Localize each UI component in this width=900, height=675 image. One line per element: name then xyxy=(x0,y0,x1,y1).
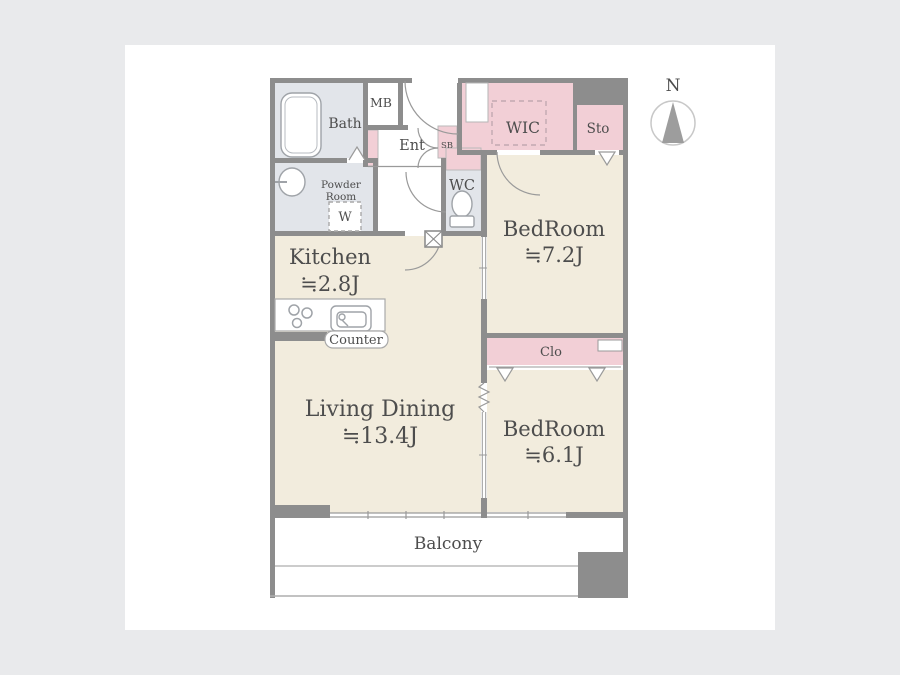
room-bedroom-b xyxy=(487,370,623,512)
label-kitchen: Kitchen xyxy=(289,245,371,269)
label-washer: W xyxy=(338,210,352,225)
label-living: Living Dining xyxy=(305,397,456,422)
label-powder-2: Room xyxy=(326,191,357,203)
label-powder-1: Powder xyxy=(321,179,362,191)
label-balcony: Balcony xyxy=(414,534,483,554)
floor-plan-drawing: N Bath Powder Room W MB Ent SB WC WIC St… xyxy=(0,0,900,675)
pipe-shaft-icon xyxy=(425,231,442,247)
label-bedroom-b-size: ≒6.1J xyxy=(524,443,583,467)
block-living-corner xyxy=(270,505,330,518)
block-balcony-top xyxy=(578,552,628,598)
label-wc: WC xyxy=(449,178,475,194)
closet-notch xyxy=(598,340,622,351)
label-kitchen-size: ≒2.8J xyxy=(300,272,359,296)
label-shoe-box: SB xyxy=(441,141,453,151)
label-meter-box: MB xyxy=(370,95,392,110)
label-counter: Counter xyxy=(329,333,383,348)
label-wic: WIC xyxy=(506,119,540,137)
bathtub-icon xyxy=(281,93,321,157)
label-closet: Clo xyxy=(540,345,562,360)
wic-notch xyxy=(466,83,488,122)
label-sto: Sto xyxy=(587,121,610,137)
label-living-size: ≒13.4J xyxy=(342,424,418,449)
toilet-icon xyxy=(450,191,474,227)
label-bedroom-b: BedRoom xyxy=(503,417,605,441)
label-bedroom-a: BedRoom xyxy=(503,217,605,241)
label-bath: Bath xyxy=(328,116,361,132)
floor-plan-page: N Bath Powder Room W MB Ent SB WC WIC St… xyxy=(0,0,900,675)
block-top-right xyxy=(573,83,623,105)
label-bedroom-a-size: ≒7.2J xyxy=(524,243,583,267)
label-entrance: Ent xyxy=(399,138,425,154)
compass-north-label: N xyxy=(666,76,681,96)
